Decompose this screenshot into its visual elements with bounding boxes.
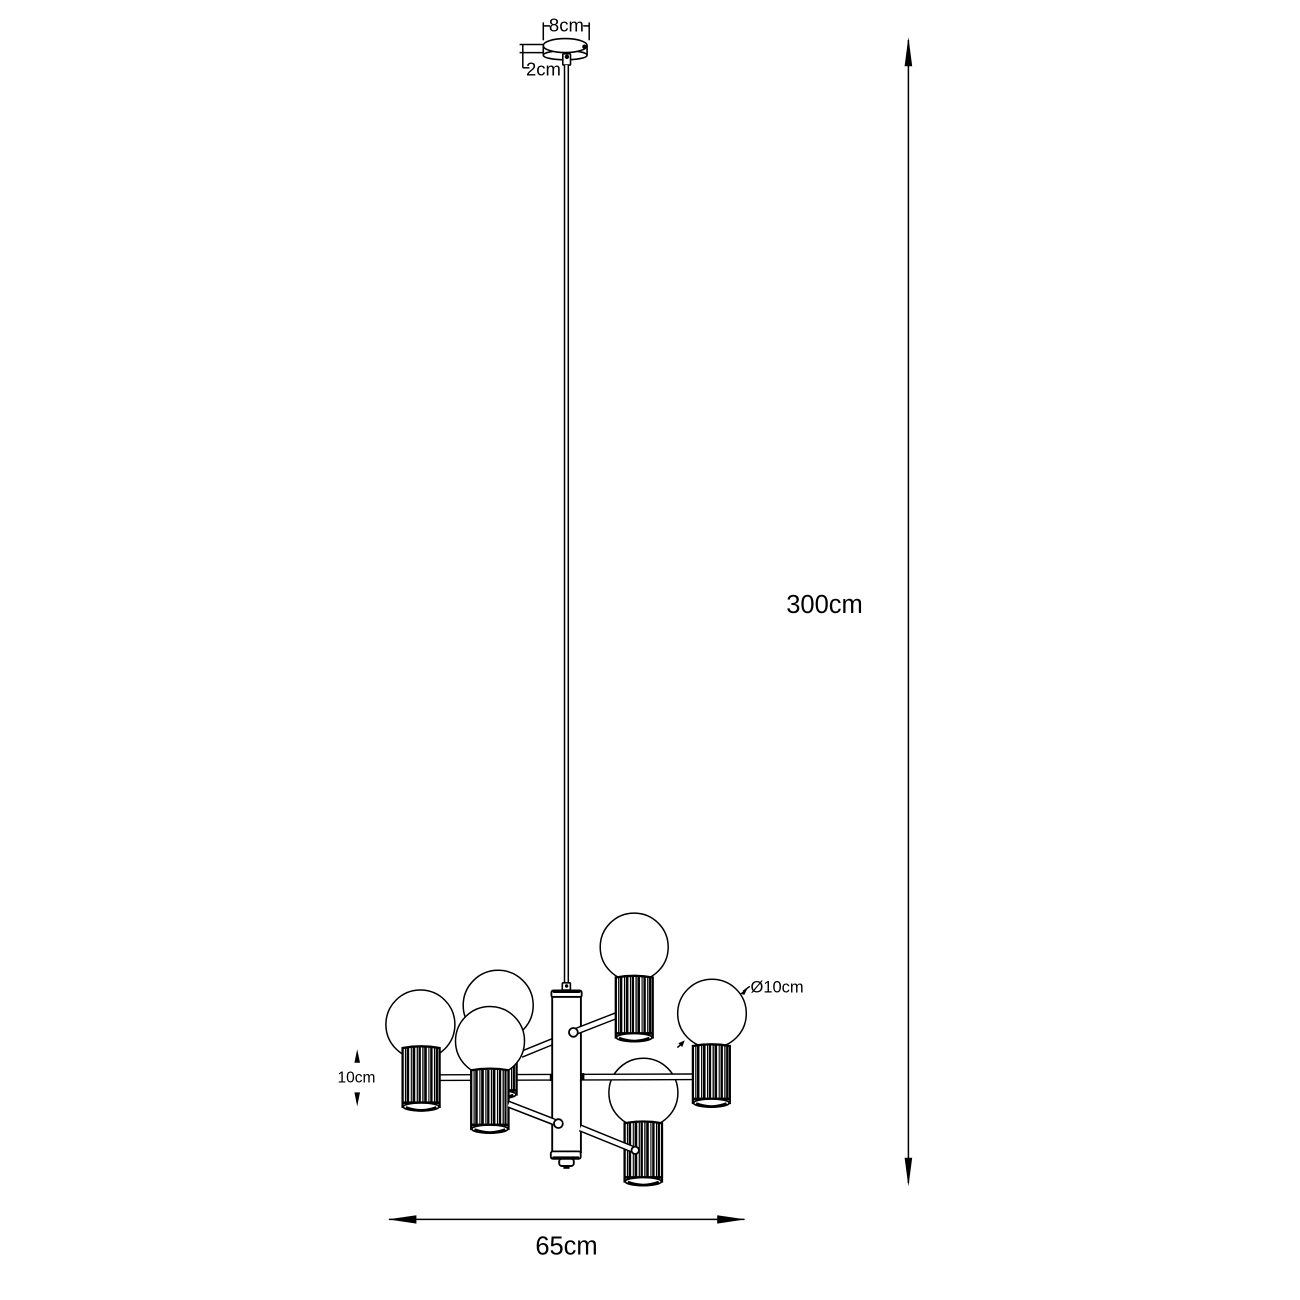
svg-text:65cm: 65cm bbox=[535, 1232, 597, 1260]
svg-text:Ø10cm: Ø10cm bbox=[751, 979, 804, 997]
svg-text:10cm: 10cm bbox=[338, 1070, 376, 1087]
svg-text:8cm: 8cm bbox=[549, 15, 584, 36]
svg-text:300cm: 300cm bbox=[786, 591, 863, 619]
svg-text:2cm: 2cm bbox=[526, 58, 561, 79]
